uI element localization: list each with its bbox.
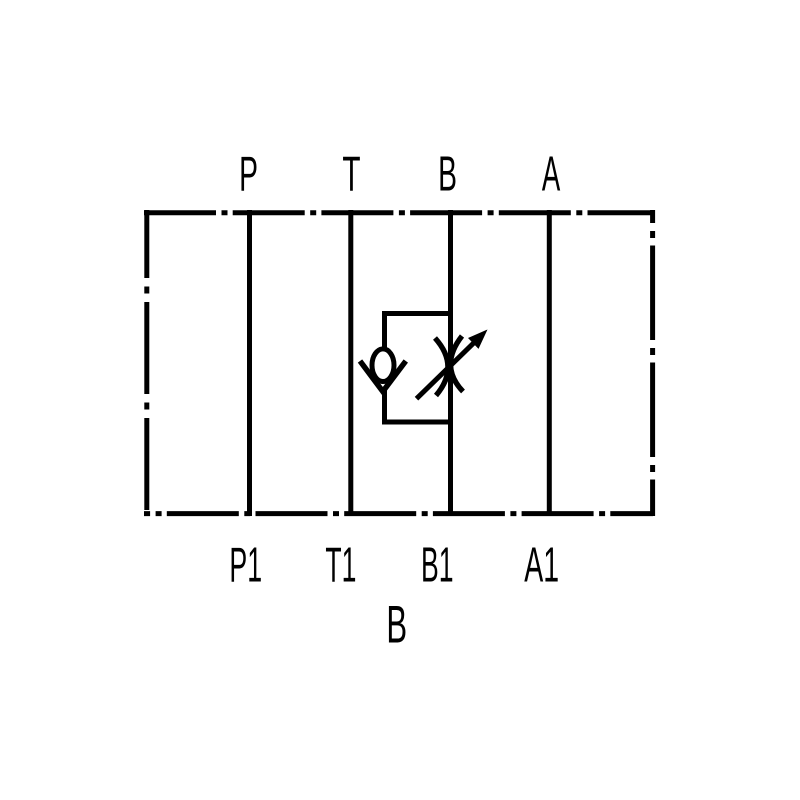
svg-text:P1: P1: [229, 538, 262, 593]
svg-text:B: B: [386, 596, 407, 654]
svg-text:T1: T1: [325, 538, 356, 593]
svg-text:A1: A1: [524, 539, 559, 593]
svg-text:A: A: [542, 147, 561, 201]
svg-text:B: B: [438, 148, 457, 202]
svg-text:B1: B1: [421, 538, 454, 593]
svg-text:P: P: [239, 148, 258, 202]
svg-text:T: T: [342, 146, 360, 202]
